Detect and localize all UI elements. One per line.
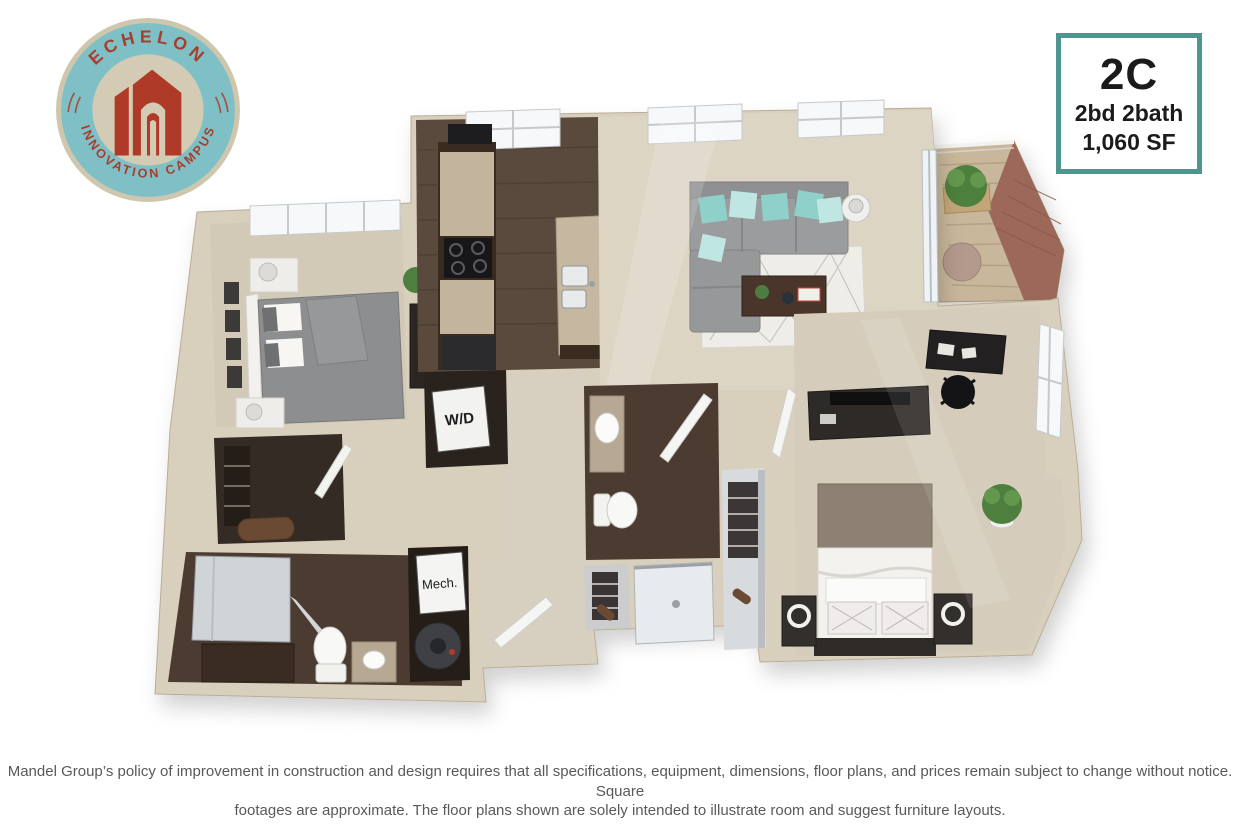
side-table-lamp bbox=[842, 194, 870, 222]
refrigerator bbox=[442, 336, 496, 370]
kitchen-counter bbox=[440, 280, 494, 334]
balcony bbox=[934, 141, 1064, 302]
lamp bbox=[246, 404, 262, 420]
lamp bbox=[259, 263, 277, 281]
sink-2 bbox=[595, 413, 619, 443]
disclaimer-line-1: Mandel Group’s policy of improvement in … bbox=[8, 763, 1233, 800]
shower-drain bbox=[672, 600, 680, 608]
bedroom-1 bbox=[210, 200, 430, 428]
bed-2-pillow bbox=[826, 578, 926, 604]
balcony-table bbox=[943, 243, 981, 281]
toilet-1 bbox=[314, 627, 346, 682]
bathroom-2 bbox=[584, 383, 720, 560]
toilet-2 bbox=[594, 492, 637, 528]
bathroom-1-vanity bbox=[202, 644, 294, 682]
kitchen-appliance bbox=[448, 124, 492, 144]
floor-plan-page: ECHELON INNOVATION CAMPUS 2C 2bd 2bath 1… bbox=[0, 0, 1240, 829]
closet-bench bbox=[237, 517, 294, 542]
mechanical-closet: Mech. bbox=[408, 546, 470, 682]
closet-1 bbox=[214, 434, 352, 544]
shower-1 bbox=[192, 556, 290, 642]
closet-2 bbox=[722, 468, 766, 650]
closet-mirror-door bbox=[758, 470, 765, 648]
bed-2 bbox=[814, 484, 936, 656]
cooktop bbox=[444, 238, 492, 278]
entry-closet bbox=[584, 564, 630, 630]
mechanical-label: Mech. bbox=[422, 575, 458, 592]
sink-1 bbox=[363, 651, 385, 669]
floor-plan: W/D Mech. bbox=[0, 0, 1240, 829]
kitchen-counter bbox=[440, 152, 494, 236]
shower-2 bbox=[634, 562, 714, 644]
bed-2-headboard bbox=[814, 638, 936, 656]
coffee-table bbox=[742, 276, 826, 316]
bedroom-2 bbox=[772, 306, 1066, 656]
disclaimer-text: Mandel Group’s policy of improvement in … bbox=[0, 762, 1240, 821]
disclaimer-line-2: footages are approximate. The floor plan… bbox=[235, 802, 1006, 819]
washer-dryer-label: W/D bbox=[444, 410, 475, 430]
washer-dryer-closet: W/D bbox=[424, 368, 508, 468]
